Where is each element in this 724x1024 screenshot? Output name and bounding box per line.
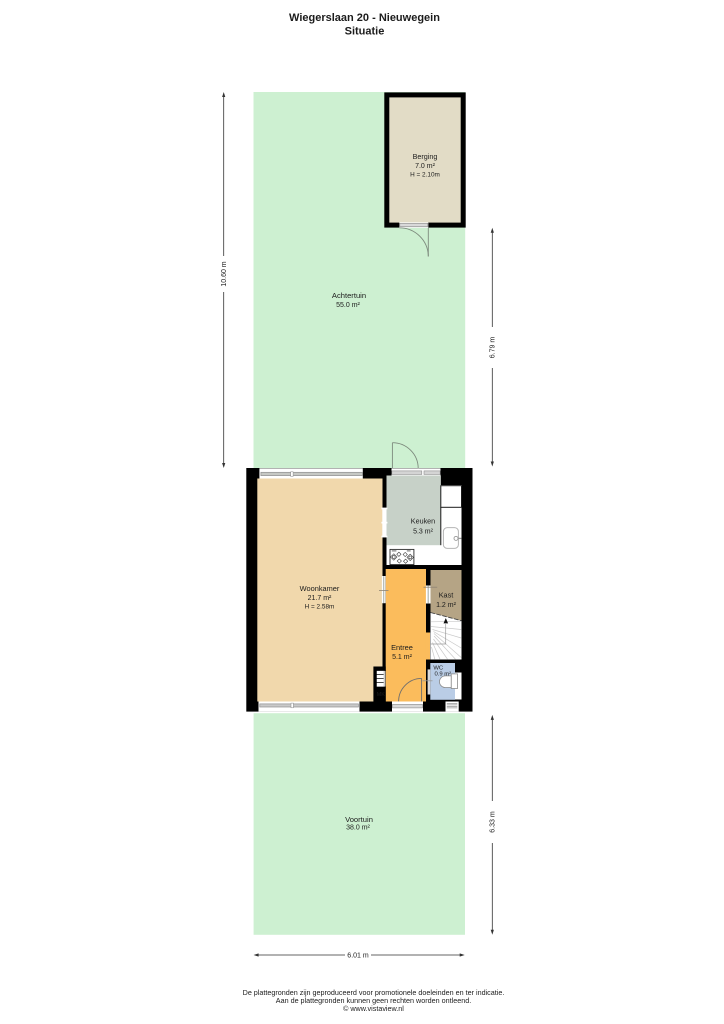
svg-text:5.1 m²: 5.1 m² — [392, 654, 413, 661]
svg-text:1.2 m²: 1.2 m² — [436, 602, 457, 609]
svg-text:21.7 m²: 21.7 m² — [308, 595, 332, 602]
svg-text:H = 2.10m: H = 2.10m — [410, 172, 440, 179]
svg-text:Situatie: Situatie — [345, 26, 385, 38]
svg-text:© www.vistaview.nl: © www.vistaview.nl — [343, 1004, 404, 1013]
svg-text:38.0 m²: 38.0 m² — [346, 825, 370, 832]
svg-text:Entree: Entree — [391, 643, 413, 652]
svg-text:MK: MK — [377, 692, 385, 698]
svg-text:6.01 m: 6.01 m — [347, 953, 369, 960]
svg-text:6.79 m: 6.79 m — [490, 337, 497, 359]
svg-text:Woonkamer: Woonkamer — [300, 584, 340, 593]
svg-text:5.3 m²: 5.3 m² — [413, 528, 434, 535]
svg-text:6.33 m: 6.33 m — [490, 811, 497, 833]
svg-text:Kast: Kast — [439, 591, 454, 600]
svg-text:Wiegerslaan 20 - Nieuwegein: Wiegerslaan 20 - Nieuwegein — [289, 12, 440, 24]
svg-text:7.0 m²: 7.0 m² — [415, 163, 436, 170]
svg-text:H = 2.58m: H = 2.58m — [305, 603, 335, 610]
svg-text:Voortuin: Voortuin — [345, 815, 373, 824]
svg-text:Achtertuin: Achtertuin — [332, 291, 366, 300]
svg-text:Berging: Berging — [413, 152, 438, 161]
svg-text:55.0 m²: 55.0 m² — [336, 302, 360, 309]
svg-text:Keuken: Keuken — [411, 517, 435, 526]
svg-text:10.60 m: 10.60 m — [221, 261, 228, 286]
